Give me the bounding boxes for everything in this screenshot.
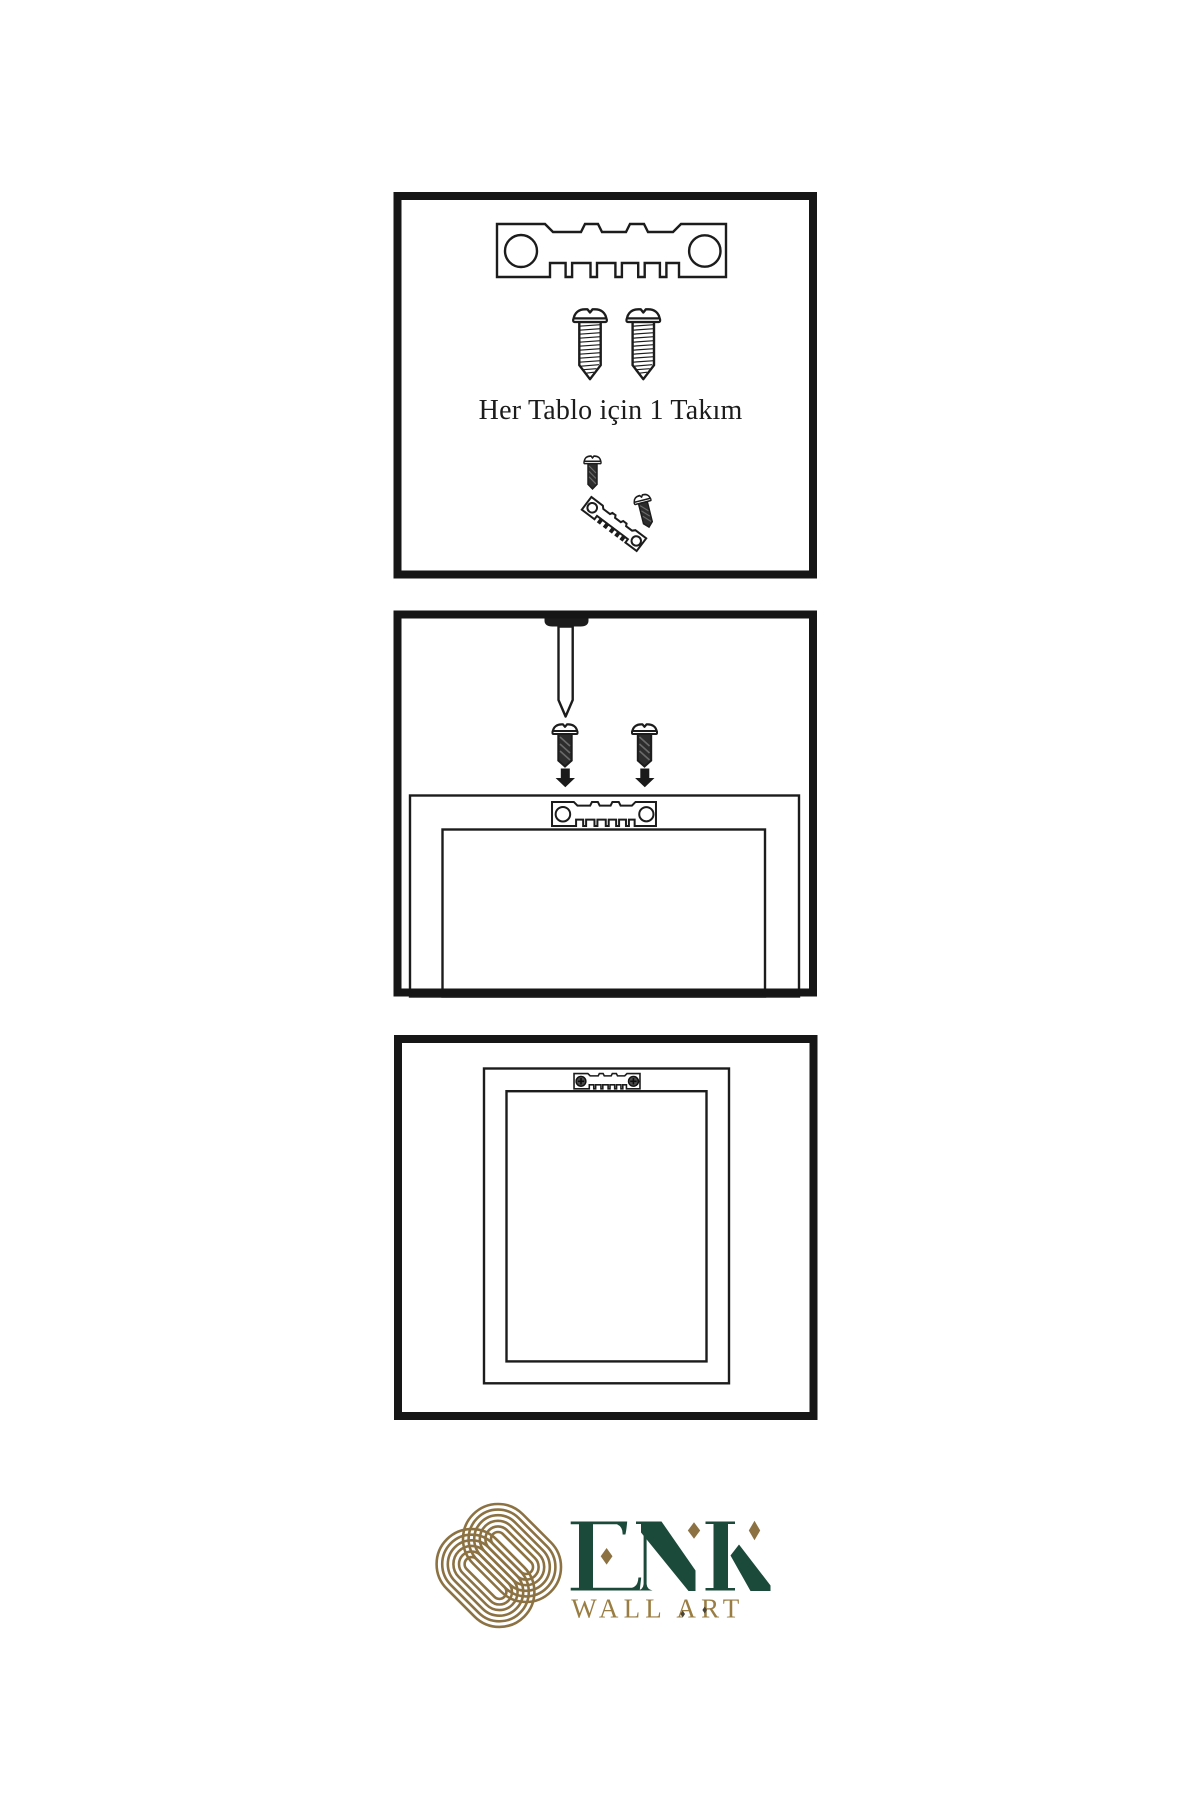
svg-text:Her Tablo için 1 Takım: Her Tablo için 1 Takım	[479, 395, 743, 426]
svg-text:WALL ART: WALL ART	[571, 1594, 744, 1624]
